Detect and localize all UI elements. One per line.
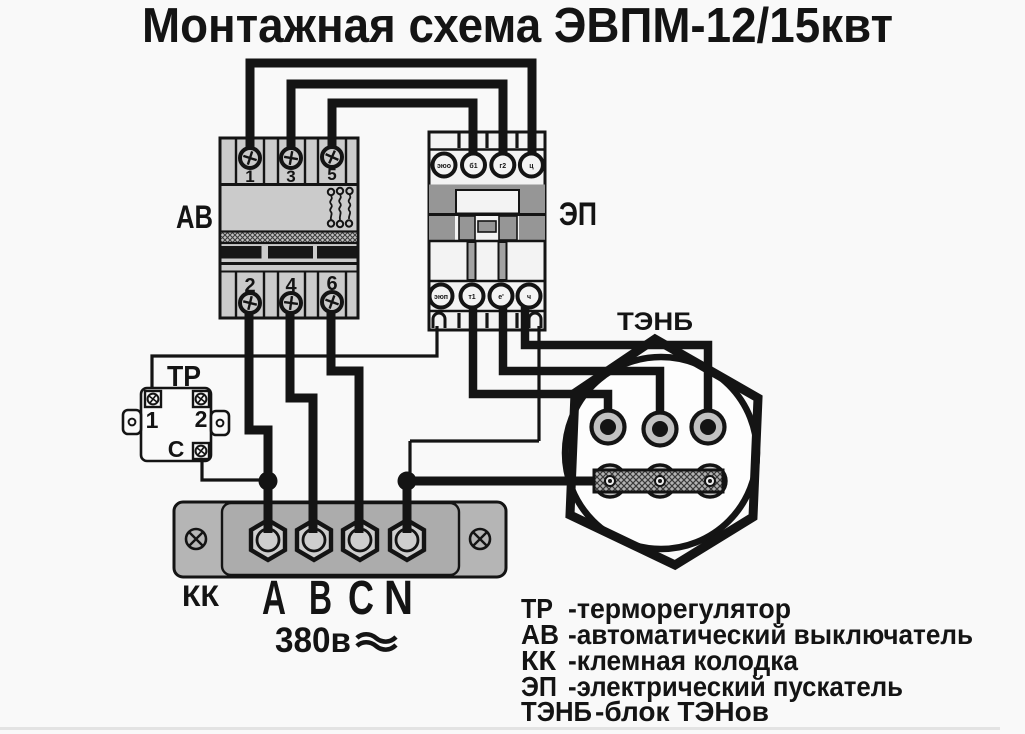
svg-text:г2: г2 (499, 163, 506, 170)
svg-text:ЭП: ЭП (559, 196, 597, 232)
svg-text:ТР: ТР (167, 361, 201, 393)
svg-text:эюо: эюо (437, 163, 451, 170)
svg-text:б1: б1 (469, 162, 477, 170)
svg-text:C: C (348, 572, 374, 625)
svg-text:B: B (309, 572, 332, 625)
svg-text:ТЭНБ: ТЭНБ (617, 308, 693, 336)
svg-text:2: 2 (195, 406, 208, 432)
svg-text:1: 1 (146, 407, 159, 433)
svg-text:ц: ц (529, 163, 534, 170)
svg-text:т1: т1 (468, 294, 475, 301)
svg-text:380в: 380в (275, 621, 351, 660)
svg-text:КК: КК (182, 580, 220, 613)
svg-text:Монтажная схема ЭВПМ-12/15квт: Монтажная схема ЭВПМ-12/15квт (142, 0, 893, 53)
svg-text:ч: ч (527, 294, 531, 301)
svg-text:N: N (384, 572, 413, 625)
svg-text:ТЭНБ-блок ТЭНов: ТЭНБ-блок ТЭНов (521, 696, 769, 727)
svg-text:е': е' (498, 294, 504, 301)
svg-text:A: A (262, 572, 286, 625)
svg-text:эюп: эюп (434, 294, 448, 301)
svg-text:АВ: АВ (176, 199, 213, 235)
svg-text:С: С (168, 436, 185, 462)
